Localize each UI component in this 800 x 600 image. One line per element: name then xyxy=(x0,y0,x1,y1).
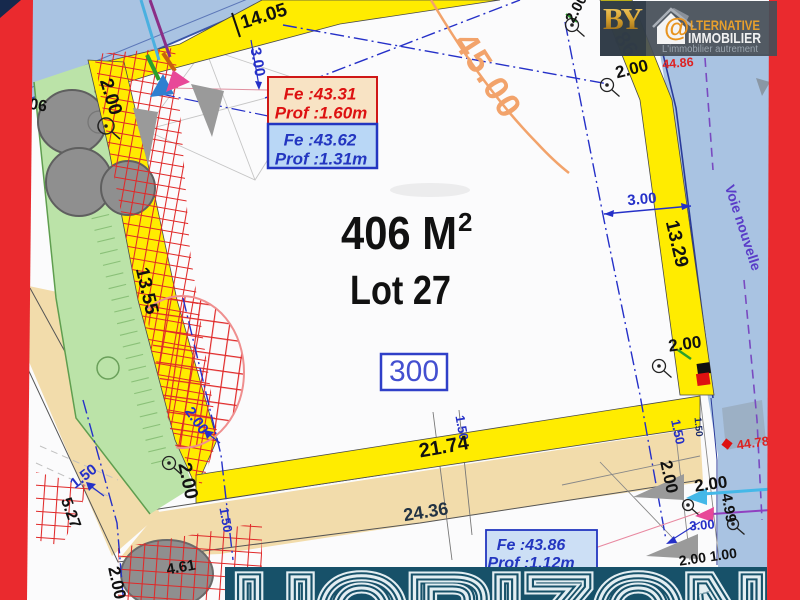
svg-text:Fe :43.31: Fe :43.31 xyxy=(284,84,357,103)
svg-text:300: 300 xyxy=(389,355,439,388)
svg-text:1.50: 1.50 xyxy=(692,417,705,438)
svg-text:L'immobilier autrement: L'immobilier autrement xyxy=(662,44,758,55)
svg-text:406 M: 406 M xyxy=(341,207,457,259)
svg-text:Fe :43.86: Fe :43.86 xyxy=(497,537,566,554)
svg-text:3.00: 3.00 xyxy=(627,190,658,209)
svg-text:Lot 27: Lot 27 xyxy=(350,267,451,313)
svg-text:Prof :1.31m: Prof :1.31m xyxy=(275,149,368,168)
svg-text:44.86: 44.86 xyxy=(662,55,694,72)
svg-text:Fe :43.62: Fe :43.62 xyxy=(284,130,357,149)
svg-text:@: @ xyxy=(664,12,689,42)
svg-text:BY: BY xyxy=(603,1,643,36)
svg-text:3.00: 3.00 xyxy=(689,516,716,533)
svg-text:Prof :1.60m: Prof :1.60m xyxy=(275,103,368,122)
svg-text:2: 2 xyxy=(458,207,472,237)
